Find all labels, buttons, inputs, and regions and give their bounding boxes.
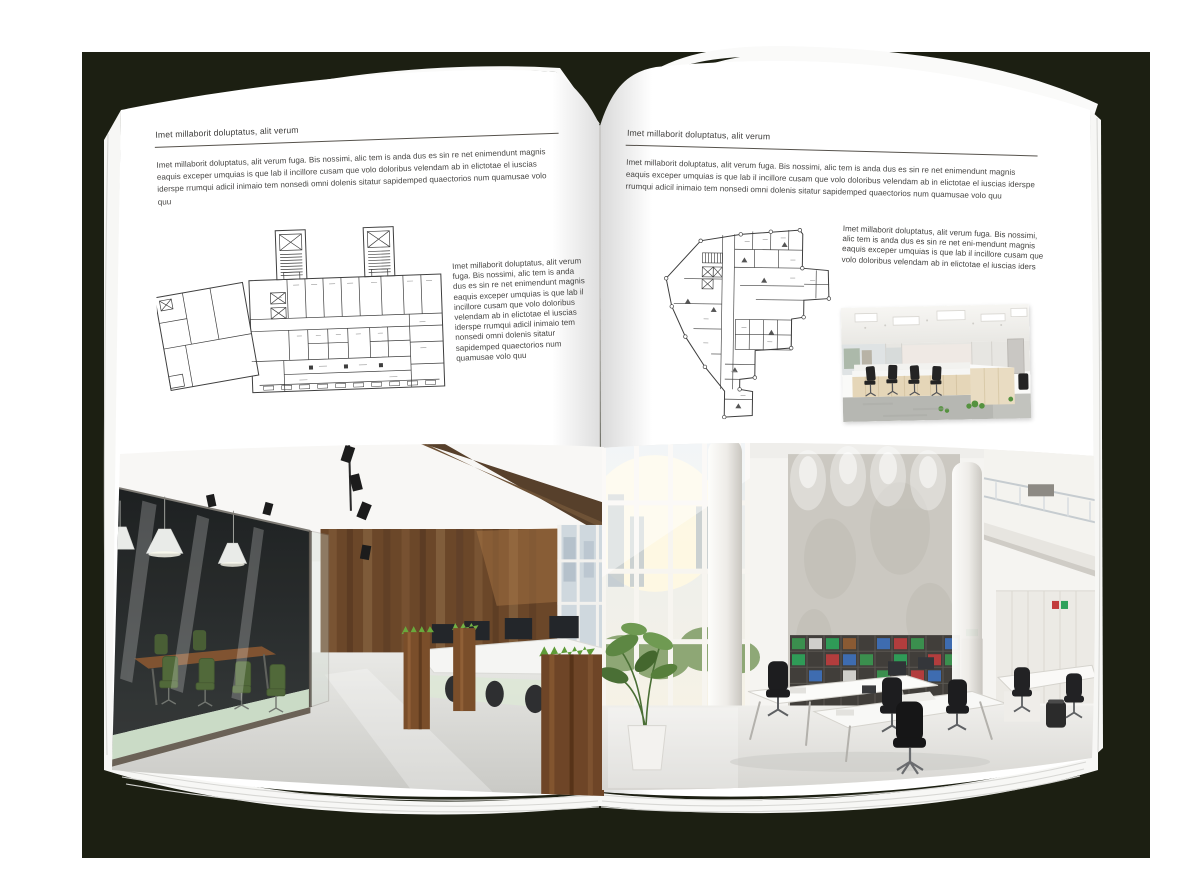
floor-plan-drawing-right bbox=[642, 218, 835, 421]
office-photo-glass-room-scene bbox=[112, 440, 604, 796]
right-page-photo bbox=[600, 438, 1096, 790]
right-side-text: Imet millaborit doluptatus, alit verum f… bbox=[841, 224, 1047, 273]
atrium-office-scene bbox=[600, 438, 1096, 790]
floor-plan-drawing-left bbox=[154, 217, 452, 411]
left-side-text: Imet millaborit doluptatus, alit verum f… bbox=[452, 256, 588, 364]
right-floor-plan bbox=[642, 218, 835, 421]
open-plan-office-scene bbox=[841, 304, 1031, 422]
right-page-small-photo bbox=[841, 304, 1031, 422]
brochure-spread-mockup: Imet millaborit doluptatus, alit verum I… bbox=[0, 0, 1200, 891]
left-page-photo bbox=[112, 440, 604, 796]
left-floor-plan bbox=[154, 217, 452, 411]
